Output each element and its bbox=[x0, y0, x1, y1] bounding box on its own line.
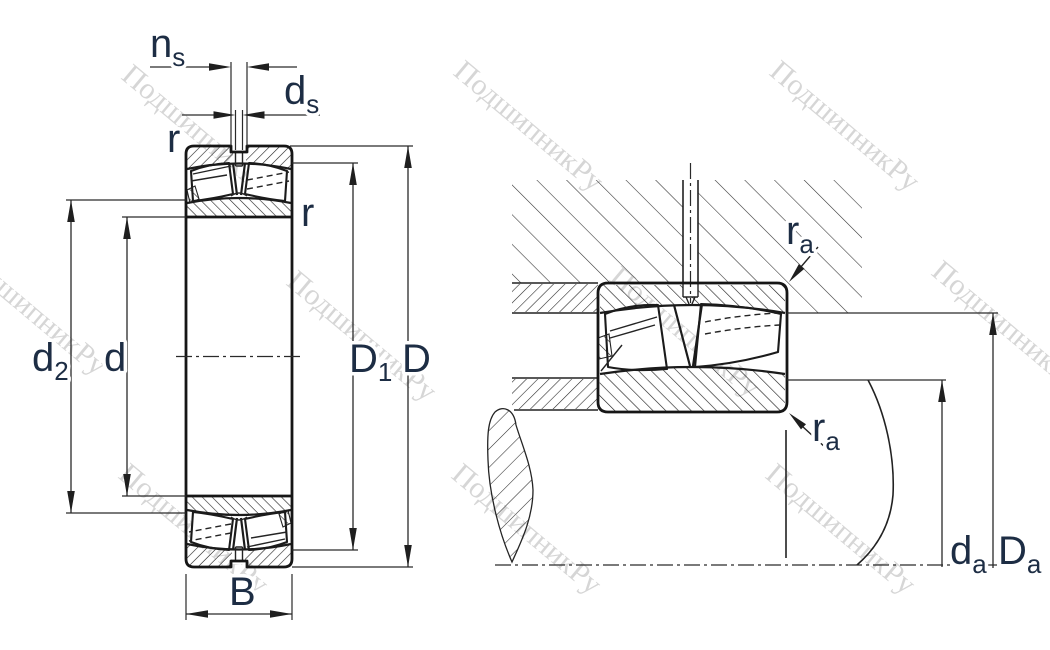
dim-B: B bbox=[186, 570, 292, 620]
label-r-inner: r bbox=[301, 191, 314, 235]
technical-drawing-canvas: ПодшипникРу ПодшипникРу ПодшипникРу Подш… bbox=[0, 0, 1050, 650]
left-view-bearing-cross-section bbox=[176, 146, 302, 567]
roller-left-right-view bbox=[605, 305, 667, 370]
dim-d: d bbox=[104, 217, 186, 496]
watermark-text: ПодшипникРу bbox=[926, 254, 1050, 398]
bore-side-edges bbox=[186, 217, 292, 357]
label-da: da bbox=[950, 529, 987, 579]
label-r-outer: r bbox=[167, 117, 180, 161]
housing-hatch-left bbox=[512, 180, 683, 283]
dim-ra-lower: ra bbox=[789, 406, 840, 456]
watermark-text: ПодшипникРу bbox=[448, 54, 611, 198]
label-ds: ds bbox=[284, 69, 319, 119]
watermark-text: ПодшипникРу bbox=[764, 54, 927, 198]
label-D: D bbox=[402, 337, 431, 381]
label-ns: ns bbox=[150, 22, 185, 72]
watermark-text: ПодшипникРу bbox=[760, 457, 923, 601]
housing-shoulder-hatch bbox=[512, 284, 598, 312]
label-B: B bbox=[229, 570, 256, 614]
label-ra-lower: ra bbox=[812, 406, 840, 456]
label-Da: Da bbox=[998, 529, 1042, 579]
label-d: d bbox=[104, 336, 126, 380]
cage-section-sliver-right-view bbox=[598, 334, 612, 359]
left-view-lower-half bbox=[186, 357, 292, 568]
bearing-drawing-svg: ПодшипникРу ПодшипникРу ПодшипникРу Подш… bbox=[0, 0, 1050, 650]
shaft-seat-hatch bbox=[512, 379, 598, 409]
inner-ring-hatch-right-view bbox=[599, 367, 785, 411]
